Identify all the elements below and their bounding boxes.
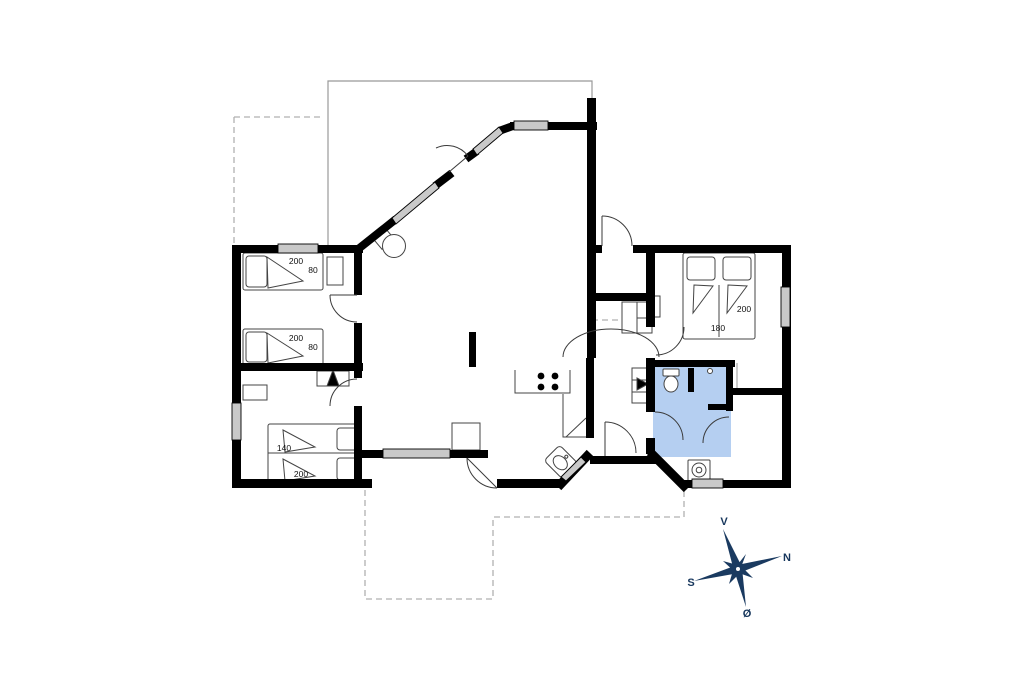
kitchen-counter-side (563, 394, 586, 437)
stove-burners-icon (538, 373, 559, 391)
nightstand (243, 385, 267, 400)
door-leaf (449, 156, 468, 172)
roof-outline (328, 81, 592, 250)
bed-size-label: 200 (294, 469, 308, 479)
door-arc (436, 145, 468, 156)
compass-center (736, 567, 740, 571)
window (232, 403, 241, 440)
door-arc (330, 295, 357, 322)
window (392, 182, 439, 224)
window (278, 244, 318, 253)
bed-size-label: 140 (277, 443, 291, 453)
bed-size-label: 200 (289, 333, 303, 343)
pillow (246, 256, 267, 287)
door-arc (602, 216, 632, 246)
toilet (663, 369, 679, 392)
window (692, 479, 723, 488)
window (514, 121, 548, 130)
pillow (723, 257, 751, 280)
hatch-arrow-symbol (317, 370, 349, 386)
compass-south-label: S (687, 577, 694, 589)
terrace-bottom-edge (365, 490, 684, 599)
compass-rose: V N S Ø (687, 516, 791, 620)
bed-size-label: 80 (308, 342, 318, 352)
window (473, 127, 503, 155)
window (781, 287, 790, 327)
door-arc (656, 327, 684, 355)
bed-size-label: 200 (289, 256, 303, 266)
door-arc (605, 422, 636, 453)
table (452, 423, 480, 450)
counter-corner (566, 418, 586, 437)
nightstand (327, 257, 343, 285)
compass-north-label: N (783, 552, 791, 564)
floor-plan-page: 200 80 200 80 140 200 200 180 V N S Ø (0, 0, 1024, 682)
bed-size-label: 180 (711, 323, 725, 333)
bed-size-label: 80 (308, 265, 318, 275)
pillow (687, 257, 715, 280)
shower-head-icon (708, 369, 713, 374)
washing-machine-icon (688, 460, 710, 481)
compass-east-label: Ø (743, 608, 752, 620)
window (383, 449, 450, 458)
bed-double-140 (268, 424, 360, 483)
bed-size-label: 200 (737, 304, 751, 314)
pillow (246, 332, 267, 362)
floor-plan: 200 80 200 80 140 200 200 180 V N S Ø (0, 0, 1024, 682)
compass-west-label: V (720, 516, 728, 528)
